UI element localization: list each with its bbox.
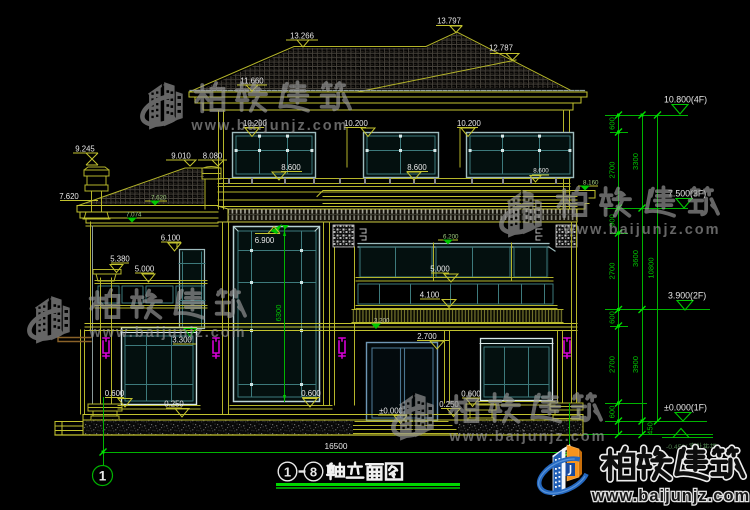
- svg-text:10.200: 10.200: [457, 119, 482, 128]
- svg-text:5.000: 5.000: [430, 265, 450, 274]
- svg-text:450: 450: [646, 422, 655, 435]
- svg-text:9.245: 9.245: [75, 145, 95, 154]
- svg-text:3.200: 3.200: [374, 318, 390, 325]
- svg-text:2700: 2700: [608, 162, 617, 179]
- svg-text:6.200: 6.200: [443, 234, 459, 241]
- svg-text:2700: 2700: [608, 356, 617, 373]
- svg-text:1: 1: [99, 469, 107, 484]
- svg-text:www.baijunjz.com: www.baijunjz.com: [88, 325, 246, 341]
- svg-text:12.787: 12.787: [489, 44, 513, 53]
- svg-text:600: 600: [608, 117, 617, 130]
- svg-text:2.700: 2.700: [417, 332, 437, 341]
- svg-text:6300: 6300: [274, 305, 283, 322]
- svg-text:1: 1: [284, 465, 291, 480]
- svg-text:10.800(4F): 10.800(4F): [664, 95, 707, 105]
- svg-text:8.160: 8.160: [583, 180, 599, 187]
- svg-text:6.900: 6.900: [255, 236, 275, 245]
- svg-text:600: 600: [608, 311, 617, 324]
- svg-text:5.000: 5.000: [135, 265, 155, 274]
- svg-text:8.080: 8.080: [203, 152, 223, 161]
- svg-text:0.600: 0.600: [301, 389, 321, 398]
- svg-text:5.380: 5.380: [110, 255, 130, 264]
- svg-text:9.010: 9.010: [171, 152, 191, 161]
- svg-text:±0.000(1F): ±0.000(1F): [664, 403, 707, 413]
- svg-text:3.900(2F): 3.900(2F): [668, 291, 706, 301]
- svg-text:600: 600: [608, 406, 617, 419]
- svg-text:10800: 10800: [647, 257, 656, 278]
- svg-text:13.797: 13.797: [437, 17, 461, 26]
- svg-text:3900: 3900: [631, 356, 640, 373]
- svg-text:8.600: 8.600: [533, 168, 549, 175]
- svg-text:3300: 3300: [631, 153, 640, 170]
- svg-text:www.baijunjz.com: www.baijunjz.com: [591, 487, 750, 505]
- svg-text:2700: 2700: [608, 263, 617, 280]
- svg-text:0.250: 0.250: [164, 400, 184, 409]
- svg-text:4.100: 4.100: [420, 291, 440, 300]
- svg-text:8.600: 8.600: [407, 163, 427, 172]
- svg-text:www.baijunjz.com: www.baijunjz.com: [448, 429, 606, 445]
- svg-text:0.600: 0.600: [105, 389, 125, 398]
- svg-text:13.266: 13.266: [290, 32, 314, 41]
- svg-text:www.baijunjz.com: www.baijunjz.com: [562, 222, 720, 238]
- svg-text:16500: 16500: [324, 441, 347, 451]
- svg-text:3600: 3600: [631, 250, 640, 267]
- svg-text:7.620: 7.620: [151, 195, 167, 202]
- svg-text:7.620: 7.620: [59, 192, 79, 201]
- svg-text:7.074: 7.074: [126, 212, 142, 219]
- svg-text:6.100: 6.100: [161, 234, 181, 243]
- svg-text:8: 8: [310, 465, 317, 480]
- svg-text:www.baijunjz.com: www.baijunjz.com: [190, 118, 348, 134]
- svg-text:8.600: 8.600: [281, 163, 301, 172]
